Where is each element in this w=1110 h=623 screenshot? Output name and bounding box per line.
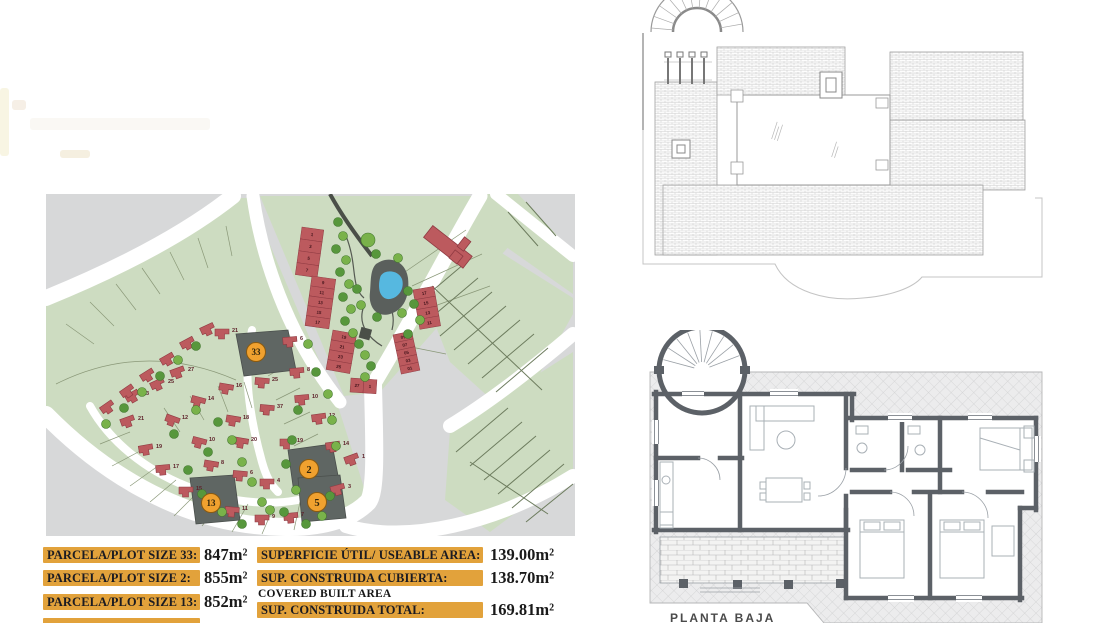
tree [280, 508, 289, 517]
parcel-number: 12 [182, 415, 188, 421]
tree [398, 309, 407, 318]
parcel-number: 17 [173, 464, 179, 470]
tree [328, 416, 337, 425]
ground-floor-label: PLANTA BAJA [670, 611, 775, 623]
tree [288, 436, 297, 445]
tree [349, 329, 358, 338]
parcel-number: 14 [343, 441, 350, 447]
roof-flat-area [731, 90, 890, 185]
tree [357, 301, 366, 310]
parcel-number: 10 [209, 437, 215, 443]
parcel-number: 27 [188, 367, 194, 373]
site-plan-map: 2725232119171511973116141218102086425371… [46, 194, 575, 536]
plot-marker-label: 33 [252, 347, 262, 357]
area-value: 139.00m² [490, 545, 554, 565]
tree [334, 218, 343, 227]
roof-plan [628, 0, 1058, 312]
tree [326, 492, 335, 501]
tree [120, 404, 129, 413]
tree [332, 245, 341, 254]
scan-artifact [12, 100, 26, 110]
tree [339, 232, 348, 241]
area-value: 169.81m² [490, 600, 554, 620]
plot-size-value: 855m² [204, 568, 247, 588]
tree [367, 362, 376, 371]
tree [336, 268, 345, 277]
tree [258, 498, 267, 507]
parcel-number: 37 [277, 404, 283, 410]
tree [294, 406, 303, 415]
tree [292, 486, 301, 495]
area-value: 138.70m² [490, 568, 554, 588]
tree [184, 466, 193, 475]
tree [102, 420, 111, 429]
tree [302, 520, 311, 529]
tree [214, 418, 223, 427]
tree [410, 300, 419, 309]
plot-marker-label: 5 [314, 498, 319, 509]
parcel-number: 19 [156, 444, 162, 450]
tree [353, 285, 362, 294]
area-label: SUPERFICIE ÚTIL/ USEABLE AREA: [257, 548, 480, 563]
scan-artifact [60, 150, 90, 158]
parcel-number: 14 [208, 396, 215, 402]
tree [138, 388, 147, 397]
plan-sheet: 2725232119171511973116141218102086425371… [0, 0, 1110, 623]
parcel-number: 21 [232, 328, 238, 334]
tree [228, 436, 237, 445]
tree [373, 313, 382, 322]
tree [318, 512, 327, 521]
pergola [664, 52, 712, 84]
parcel-number: 6 [250, 470, 253, 476]
parcel-number: 7 [301, 512, 304, 518]
tree [347, 305, 356, 314]
area-label: SUP. CONSTRUIDA CUBIERTA: [257, 571, 447, 586]
tree [342, 256, 351, 265]
tree [248, 478, 257, 487]
tree [361, 373, 370, 382]
tree [324, 390, 333, 399]
parcel-number: 25 [168, 379, 174, 385]
tree [355, 340, 364, 349]
area-sublabel: COVERED BUILT AREA [258, 588, 391, 600]
plot-size-value: 852m² [204, 592, 247, 612]
parcel-number: 21 [138, 416, 144, 422]
parcel-number: 1 [362, 454, 365, 460]
tree [174, 356, 183, 365]
tree [304, 340, 313, 349]
parcel-number: 19 [297, 438, 303, 444]
tree [404, 287, 413, 296]
area-bar: SUPERFICIE ÚTIL/ USEABLE AREA: [257, 547, 483, 563]
tree [345, 280, 354, 289]
parcel-number: 20 [251, 437, 257, 443]
parcel-number: 16 [236, 383, 242, 389]
tree [332, 442, 341, 451]
plot-marker-label: 2 [306, 465, 311, 476]
plot-size-value: 847m² [204, 545, 247, 565]
tree [341, 317, 350, 326]
plot-marker-label: 13 [207, 498, 217, 508]
scan-artifact [30, 118, 210, 130]
tree [238, 458, 247, 467]
plot-size-bar: PARCELA/PLOT SIZE 13: [43, 594, 200, 610]
parcel-number: 10 [312, 394, 318, 400]
tree [282, 460, 291, 469]
tree [238, 520, 247, 529]
ground-floor-plan: PLANTA BAJA [640, 330, 1050, 623]
area-label: SUP. CONSTRUIDA TOTAL: [257, 603, 425, 618]
tree [416, 316, 425, 325]
parcel-number: 8 [307, 367, 310, 373]
parcel-number: 18 [243, 415, 249, 421]
tree [204, 448, 213, 457]
tree [361, 233, 375, 247]
area-bar: SUP. CONSTRUIDA TOTAL: [257, 602, 483, 618]
tree [192, 406, 201, 415]
tree [312, 368, 321, 377]
parcel-number: 3 [348, 484, 351, 490]
plot-size-bar-partial [43, 618, 200, 623]
parcel-number: 11 [242, 506, 248, 512]
plot-size-label: PARCELA/PLOT SIZE 2: [43, 571, 191, 586]
spiral-stair-tower [654, 330, 750, 413]
tree [156, 372, 165, 381]
scan-artifact [0, 88, 9, 156]
parcel-number: 9 [272, 514, 275, 520]
area-bar: SUP. CONSTRUIDA CUBIERTA: [257, 570, 483, 586]
tree [361, 351, 370, 360]
parcel-number: 25 [272, 377, 278, 383]
tree [339, 293, 348, 302]
tree [394, 254, 403, 263]
plot-size-label: PARCELA/PLOT SIZE 13: [43, 595, 197, 610]
tree [192, 342, 201, 351]
plot-size-bar: PARCELA/PLOT SIZE 33: [43, 547, 200, 563]
plot-size-label: PARCELA/PLOT SIZE 33: [43, 548, 197, 563]
terrace-number: 27 [354, 383, 360, 388]
parcel-number: 6 [300, 336, 303, 342]
tree [266, 506, 275, 515]
parcel-number: 8 [221, 460, 224, 466]
plot-size-bar: PARCELA/PLOT SIZE 2: [43, 570, 200, 586]
tree [372, 250, 381, 259]
tree [170, 430, 179, 439]
tree [404, 330, 413, 339]
